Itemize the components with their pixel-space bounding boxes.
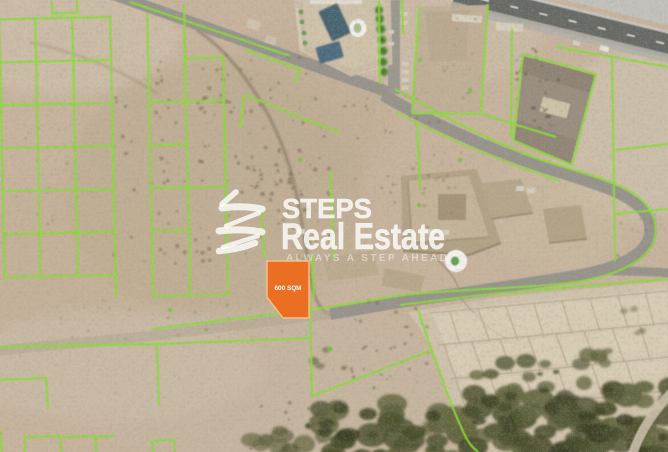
svg-text:ALWAYS A STEP AHEAD: ALWAYS A STEP AHEAD [286,253,451,264]
svg-text:Real Estate: Real Estate [281,216,445,257]
svg-text:600 SQM: 600 SQM [275,285,302,292]
